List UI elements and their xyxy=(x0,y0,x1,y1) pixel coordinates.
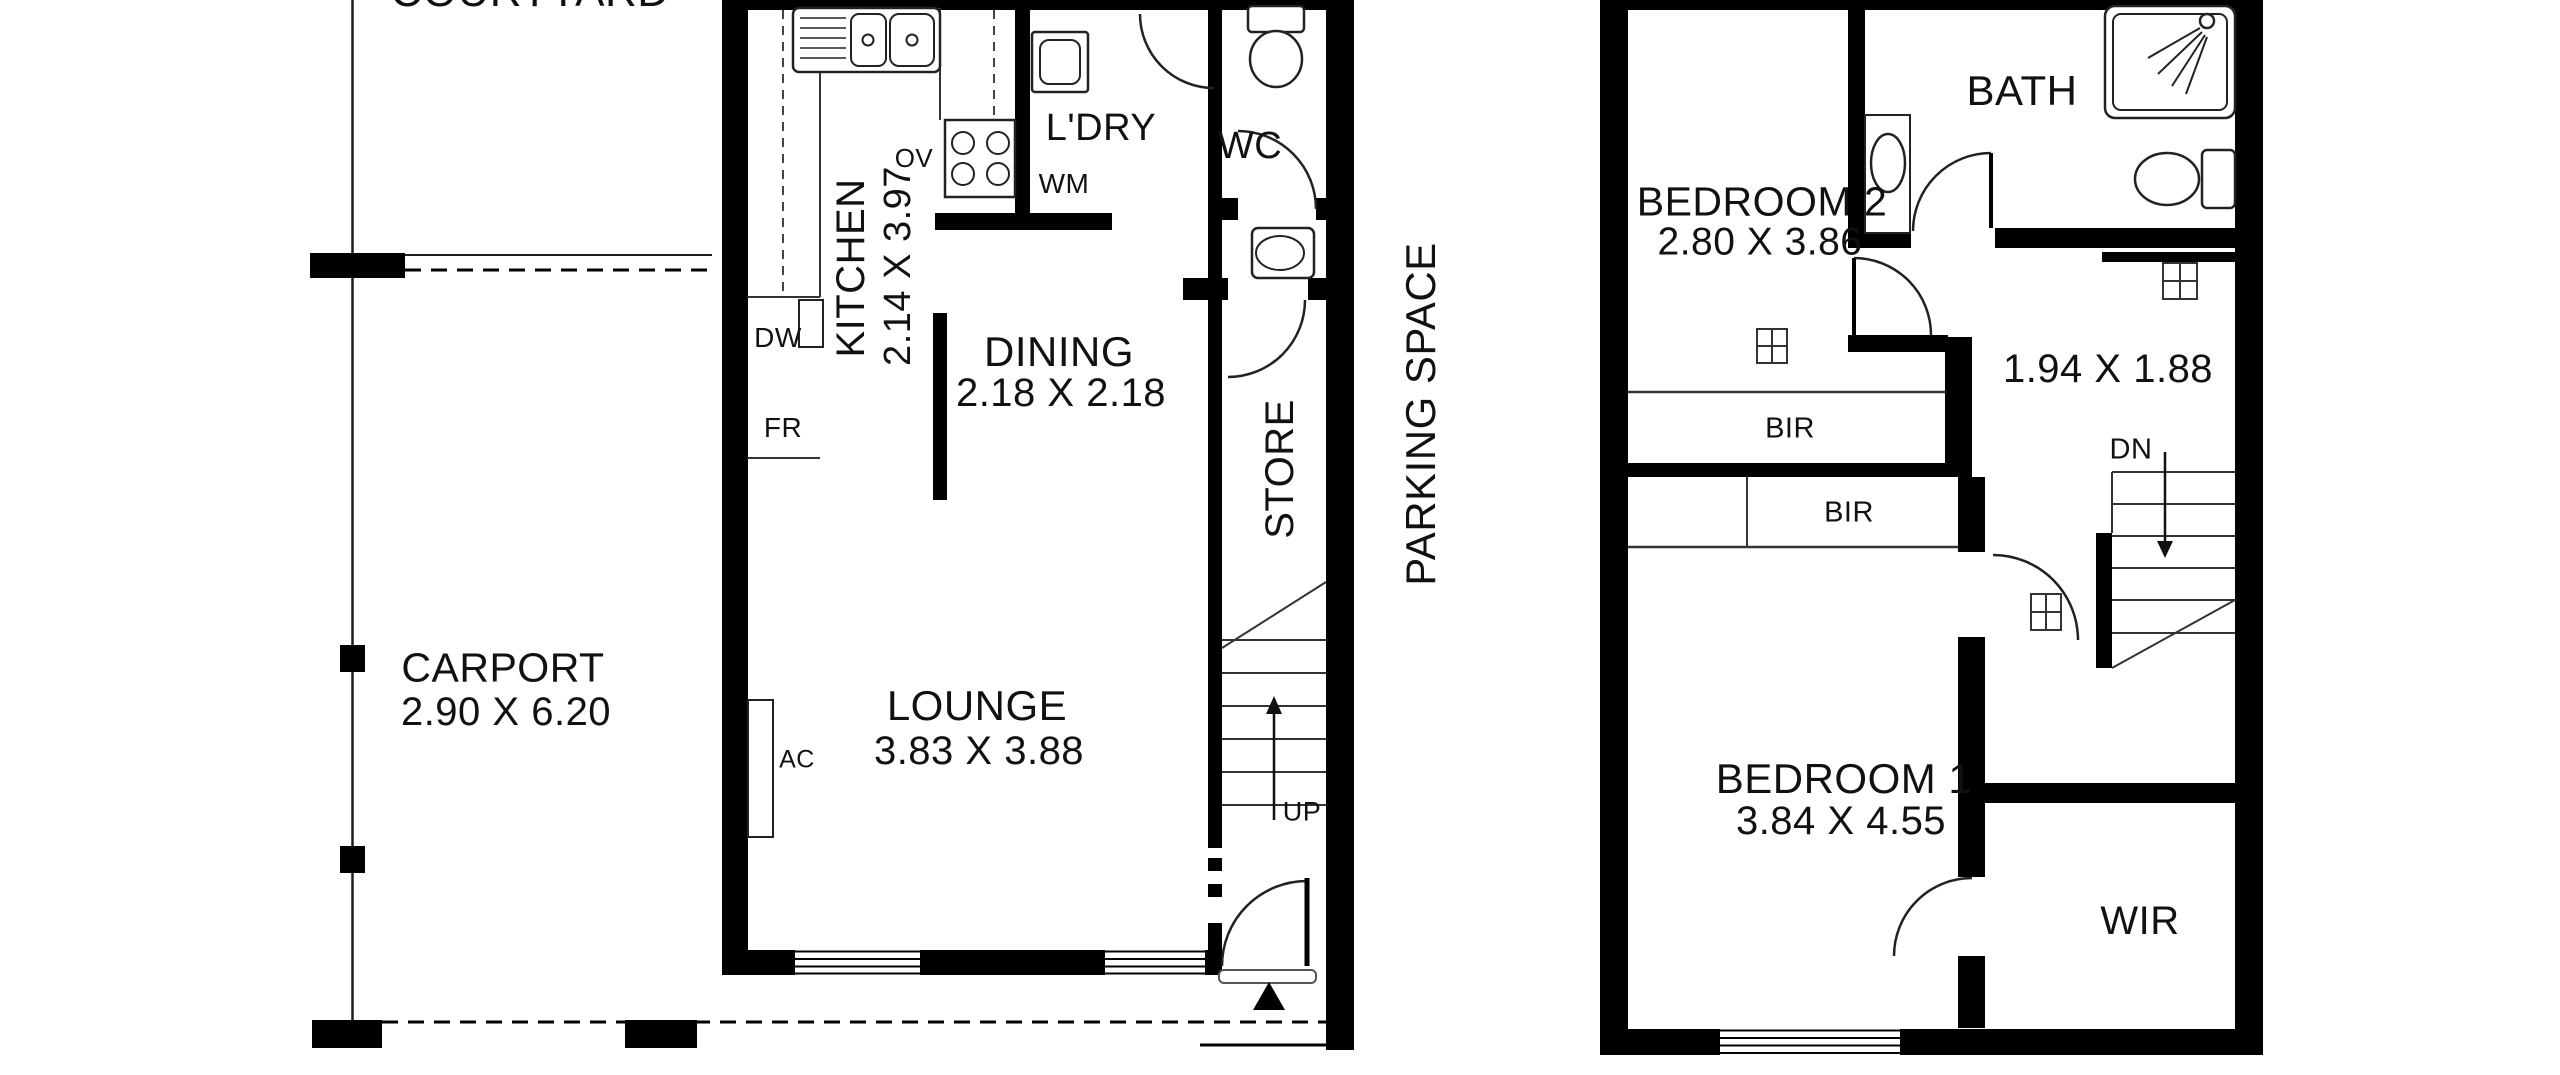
window-lounge-right xyxy=(1105,950,1205,975)
wall-kitchen-laundry xyxy=(1015,0,1030,213)
label-fridge: FR xyxy=(764,414,802,442)
label-dining-dims: 2.18 X 2.18 xyxy=(956,373,1166,413)
wall-store-dash-1 xyxy=(1208,858,1222,871)
floor-plan: COURTYARD CARPORT 2.90 X 6.20 KITCHEN 2.… xyxy=(0,0,2560,1075)
wall-laundry-wc xyxy=(1208,0,1222,230)
window-lounge-left xyxy=(795,950,920,975)
wall-left xyxy=(722,0,748,975)
label-dn: DN xyxy=(2110,436,2153,465)
basin-icon-ground xyxy=(1252,228,1314,278)
sink-unit xyxy=(793,8,940,72)
u-wall-wir-top xyxy=(1985,783,2235,803)
label-wir: WIR xyxy=(2100,901,2179,941)
u-wall-hall-vertical xyxy=(1945,337,1972,477)
label-bir-bottom: BIR xyxy=(1824,499,1874,528)
toilet-icon-ground xyxy=(1248,6,1304,87)
u-wall-stair-side xyxy=(2096,533,2112,668)
label-ac: AC xyxy=(779,748,815,773)
label-dining: DINING xyxy=(984,331,1134,373)
label-kitchen: KITCHEN xyxy=(831,178,871,357)
cooktop-icon xyxy=(945,120,1015,197)
label-washing-machine: WM xyxy=(1039,170,1090,198)
shower-icon xyxy=(2105,6,2235,118)
label-up: UP xyxy=(1283,799,1322,826)
wall-hall xyxy=(935,213,1112,230)
window-bedroom1 xyxy=(1720,1029,1900,1055)
label-store: STORE xyxy=(1260,399,1300,539)
label-dishwasher: DW xyxy=(754,324,802,352)
carport-post-3 xyxy=(625,1020,697,1048)
u-wall-bottom xyxy=(1600,1029,2263,1055)
wall-store-left xyxy=(1208,230,1222,848)
washing-machine-icon xyxy=(1032,32,1088,92)
label-bedroom2-dims: 2.80 X 3.86 xyxy=(1658,223,1863,262)
entry-marker-triangle xyxy=(1253,982,1285,1010)
label-bedroom1: BEDROOM 1 xyxy=(1716,758,1973,800)
label-hall-dims: 1.94 X 1.88 xyxy=(2003,349,2213,389)
label-courtyard: COURTYARD xyxy=(390,0,669,14)
wall-wc-bottom-left xyxy=(1222,198,1238,220)
wall-right xyxy=(1326,0,1354,1050)
label-bir-top: BIR xyxy=(1765,415,1815,444)
carport-corner-post xyxy=(312,1020,382,1048)
entry-door-sill xyxy=(1219,970,1316,983)
wall-island xyxy=(933,313,947,500)
laundry-door-arc xyxy=(1140,14,1214,88)
store-door-arc xyxy=(1228,300,1305,377)
u-wall-bed1-c xyxy=(1958,956,1985,1028)
wall-wc-bottom-right xyxy=(1316,198,1326,220)
label-lounge-dims: 3.83 X 3.88 xyxy=(874,731,1084,771)
grid-symbol-hall xyxy=(2163,263,2197,299)
bedroom2-door xyxy=(1854,258,1931,335)
wall-store-dash-2 xyxy=(1208,884,1222,897)
label-bedroom2: BEDROOM 2 xyxy=(1637,182,1888,223)
u-wall-right xyxy=(2235,0,2263,1055)
u-wall-bir xyxy=(1600,463,1972,477)
grid-symbol-bedroom2 xyxy=(1757,329,1787,363)
bath-door xyxy=(1913,153,1991,231)
carport-post-2 xyxy=(340,846,365,873)
u-wall-bath-bottom-right xyxy=(1995,228,2263,248)
label-carport: CARPORT xyxy=(401,648,604,689)
u-wall-bed1-a xyxy=(1958,477,1985,552)
label-parking-space: PARKING SPACE xyxy=(1400,242,1442,585)
label-wc: WC xyxy=(1218,127,1282,165)
label-lounge: LOUNGE xyxy=(887,685,1067,727)
ac-unit-icon xyxy=(748,700,773,837)
label-bedroom1-dims: 3.84 X 4.55 xyxy=(1736,801,1946,841)
entry-door xyxy=(1219,878,1316,1010)
wir-door-arc xyxy=(1894,878,1972,956)
wall-lobby-right xyxy=(1308,278,1326,300)
stairs-ground-break-line xyxy=(1222,582,1326,648)
label-carport-dims: 2.90 X 6.20 xyxy=(401,692,611,732)
upper-floor xyxy=(1600,0,2263,1055)
stairs-upper xyxy=(2112,472,2235,668)
courtyard-wall xyxy=(310,253,405,278)
u-wall-bed2-door xyxy=(1848,335,1948,352)
label-kitchen-dims: 2.14 X 3.97 xyxy=(879,166,917,366)
wall-store-left-2 xyxy=(1208,923,1222,950)
up-arrow xyxy=(1266,696,1282,820)
u-wall-stairwell-top xyxy=(2102,252,2235,262)
label-oven: OV xyxy=(895,145,934,171)
grid-symbol-bedroom1 xyxy=(2031,594,2061,630)
label-laundry: L'DRY xyxy=(1046,109,1156,147)
dishwasher-icon xyxy=(799,300,823,347)
carport-post-1 xyxy=(340,645,365,672)
u-wall-left xyxy=(1600,0,1628,1055)
label-bath: BATH xyxy=(1967,70,2078,112)
toilet-icon-upper xyxy=(2135,150,2235,208)
ground-floor xyxy=(310,0,1354,1050)
